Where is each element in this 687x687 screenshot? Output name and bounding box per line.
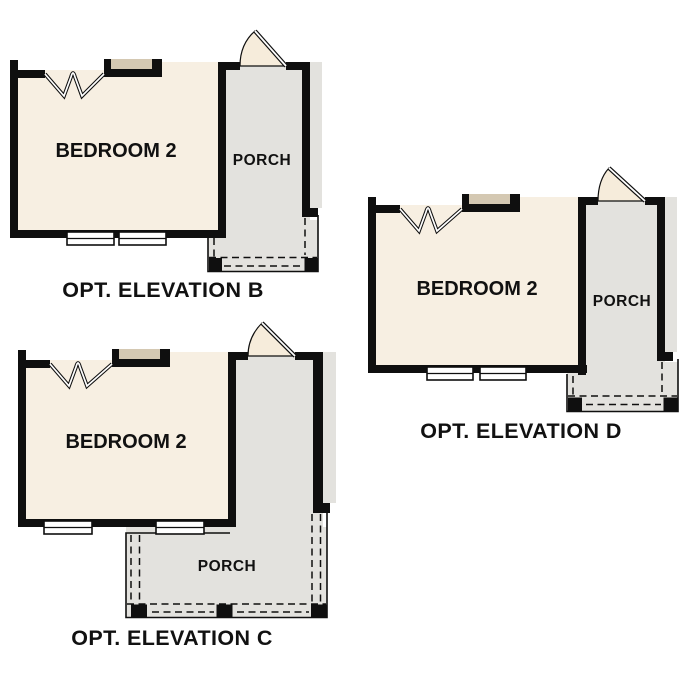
room-label: BEDROOM 2 <box>416 278 537 300</box>
exterior-strip <box>323 352 336 503</box>
window <box>119 232 166 245</box>
window-header <box>462 194 520 212</box>
window-sill <box>111 59 152 69</box>
floorplan-drawing: BEDROOM 2 PORCH OPT. ELEVATION B <box>0 0 687 687</box>
room-label: BEDROOM 2 <box>55 140 176 162</box>
porch-post <box>568 398 582 412</box>
caption: OPT. ELEVATION C <box>71 626 273 650</box>
porch-label: PORCH <box>198 558 256 575</box>
porch-post <box>305 258 318 272</box>
room-label: BEDROOM 2 <box>65 431 186 453</box>
caption: OPT. ELEVATION B <box>62 278 264 302</box>
porch-post <box>311 605 327 618</box>
window <box>44 521 92 534</box>
door-swing-icon <box>248 323 295 356</box>
door-swing-icon <box>598 168 645 201</box>
window-sill <box>469 194 510 204</box>
window-sill <box>119 349 160 359</box>
window <box>480 367 526 380</box>
exterior-strip <box>310 62 322 208</box>
porch-post <box>209 258 222 272</box>
floorplan-canvas: BEDROOM 2 PORCH OPT. ELEVATION B <box>0 0 687 687</box>
elevation-d: BEDROOM 2 PORCH OPT. ELEVATION D <box>368 168 678 443</box>
window <box>427 367 473 380</box>
window <box>67 232 114 245</box>
porch-floor <box>578 197 665 375</box>
elevation-c: BEDROOM 2 PORCH OPT. ELEVATION C <box>18 323 336 650</box>
caption: OPT. ELEVATION D <box>420 419 622 443</box>
door-swing-icon <box>240 31 286 66</box>
window-header <box>112 349 170 367</box>
porch-post <box>664 398 678 412</box>
window-header <box>104 59 162 77</box>
porch-post <box>217 605 233 618</box>
porch-floor <box>218 62 310 238</box>
porch-label: PORCH <box>233 152 291 169</box>
elevation-b: BEDROOM 2 PORCH OPT. ELEVATION B <box>10 31 322 302</box>
porch-post <box>131 605 147 618</box>
porch-label: PORCH <box>593 293 651 310</box>
window <box>156 521 204 534</box>
porch-floor <box>228 352 323 527</box>
exterior-strip <box>665 197 677 352</box>
